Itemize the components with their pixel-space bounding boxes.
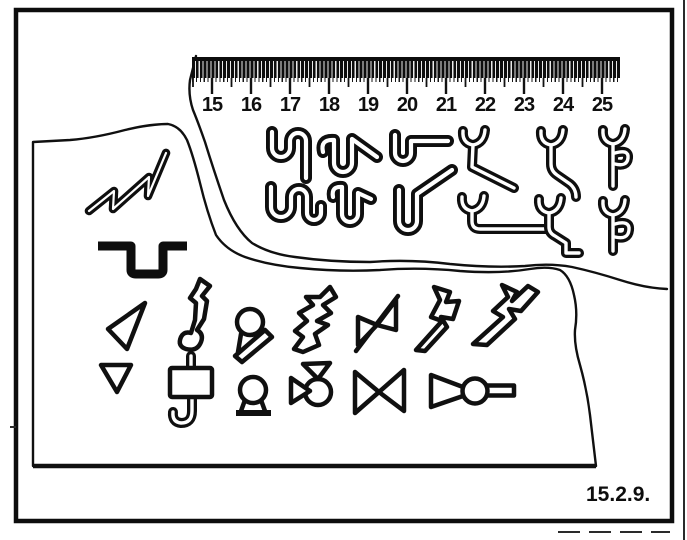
fork-long-leg-profile-icon [463, 130, 514, 188]
ruler-scale-band [192, 57, 620, 78]
small-triangle-icon [101, 365, 131, 392]
s-hook-curl-profile-icon [271, 187, 321, 220]
channel-profile-icon [98, 246, 187, 274]
ruler-mm-ticks [192, 78, 620, 82]
fork-l-foot-profile-icon [462, 196, 546, 229]
u-hook-diagonal-profile-icon [399, 170, 452, 230]
figure-number-label: 15.2.9. [586, 483, 670, 507]
s-hook-profile-icon [272, 132, 306, 178]
fork-bent-leg-profile-icon [541, 130, 576, 197]
omega-loop-icon [236, 377, 271, 413]
u-hook-bar-profile-icon [395, 135, 448, 161]
ruler-number: 17 [275, 94, 305, 117]
zigzag-seam-icon [294, 287, 336, 352]
fork-double-notch-profile-icon [603, 129, 628, 186]
u-hook-flag-profile-icon [322, 139, 377, 172]
scanned-figure-page: 15 16 17 18 19 20 21 22 23 24 25 15.2.9. [0, 0, 687, 540]
ruler-number: 21 [431, 94, 461, 117]
ruler-number: 15 [197, 94, 227, 117]
funnel-ball-stem-icon [431, 375, 514, 407]
offset-zigzag-seam-icon [416, 287, 459, 351]
box-hook-seam-icon [170, 356, 212, 423]
bowtie-diagonal-icon [356, 296, 398, 351]
ruler-number: 23 [509, 94, 539, 117]
offset-zigzag-seam-wide-icon [473, 285, 538, 345]
u-hook-foot-profile-icon [333, 187, 371, 222]
ruler-number: 24 [548, 94, 578, 117]
figure-border [16, 10, 672, 521]
ruler-number: 19 [353, 94, 383, 117]
triangle-arrowhead-icon [108, 303, 145, 349]
loop-on-slanted-base-icon [235, 309, 272, 362]
bowtie-icon [355, 370, 404, 413]
s-fold-seam-icon [180, 279, 210, 350]
fork-s-leg-profile-icon [539, 198, 579, 253]
zigzag-profile-icon [89, 153, 166, 211]
ruler-number: 25 [587, 94, 617, 117]
ruler-number: 16 [236, 94, 266, 117]
ruler-number: 22 [470, 94, 500, 117]
ruler-number: 20 [392, 94, 422, 117]
ruler-number: 18 [314, 94, 344, 117]
upper-fragment-outline [189, 56, 667, 289]
fork-double-notch-profile-icon-2 [603, 200, 629, 251]
triangle-circle-cluster-icon [291, 363, 331, 405]
